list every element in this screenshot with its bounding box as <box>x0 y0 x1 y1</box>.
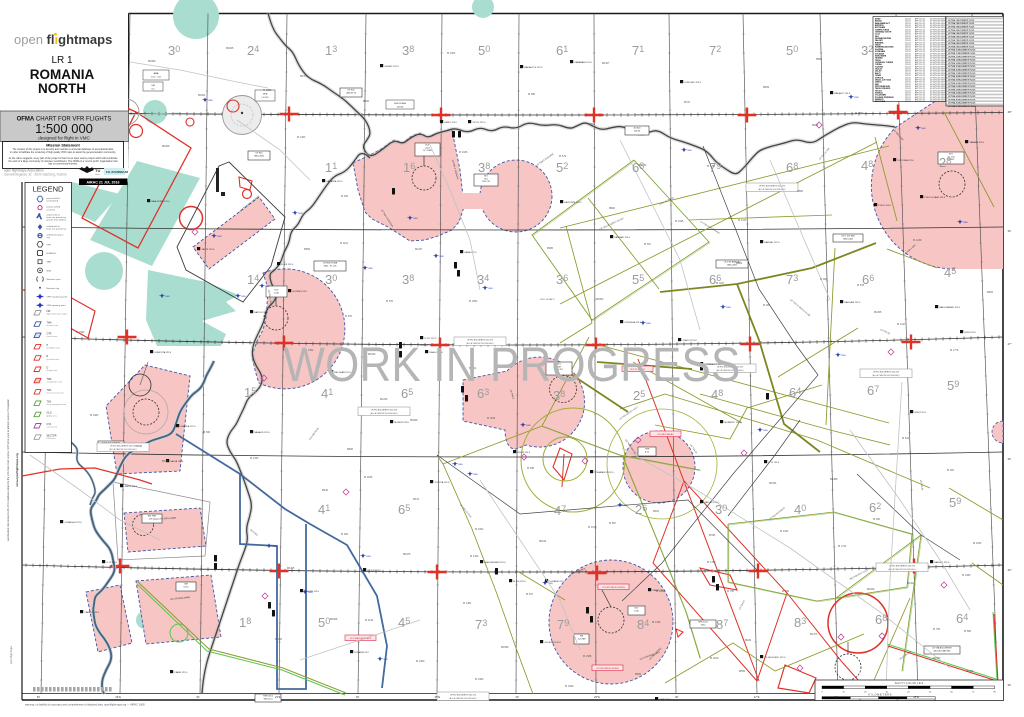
svg-text:temp segregated area: temp segregated area <box>47 403 67 406</box>
svg-text:1:500 000: 1:500 000 <box>35 121 93 136</box>
svg-text:1898: 1898 <box>412 419 418 422</box>
svg-text:450: 450 <box>876 518 881 521</box>
svg-text:722: 722 <box>686 101 691 104</box>
svg-text:485: 485 <box>531 93 536 96</box>
svg-text:30': 30' <box>516 695 520 699</box>
svg-text:429: 429 <box>747 639 752 642</box>
svg-text:1505: 1505 <box>968 670 974 673</box>
svg-text:570: 570 <box>389 300 394 303</box>
svg-text:gliding area: gliding area <box>47 415 58 417</box>
svg-text:579: 579 <box>562 155 567 158</box>
svg-text:1905: 1905 <box>228 47 234 50</box>
svg-text:LR TMA 2 BACAU: LR TMA 2 BACAU <box>657 433 674 436</box>
svg-text:TSA: TSA <box>47 400 52 403</box>
svg-text:1712: 1712 <box>841 545 847 548</box>
svg-text:529: 529 <box>765 86 770 89</box>
svg-text:LR TWR TARGU MURES: LR TWR TARGU MURES <box>602 586 625 589</box>
svg-text:(ALL ALT ABOVE 5000 MSL AGL): (ALL ALT ABOVE 5000 MSL AGL) <box>888 568 915 571</box>
svg-text:HX/ADHC: HX/ADHC <box>47 252 57 255</box>
svg-text:LEGEND: LEGEND <box>33 185 64 194</box>
svg-text:airfield with grass: airfield with grass <box>47 234 65 237</box>
svg-text:760: 760 <box>730 590 735 593</box>
svg-text:warning: no liability for accu: warning: no liability for accuracy and c… <box>25 703 145 707</box>
svg-text:1503: 1503 <box>450 52 456 55</box>
svg-text:1593: 1593 <box>79 331 85 334</box>
svg-text:SECTOR: SECTOR <box>47 434 57 437</box>
svg-text:904: 904 <box>989 291 994 294</box>
svg-text:1247: 1247 <box>900 323 906 326</box>
svg-text:2019: 2019 <box>713 657 719 660</box>
svg-text:1185: 1185 <box>490 417 496 420</box>
svg-text:AMA: AMA <box>154 72 159 75</box>
svg-text:483: 483 <box>766 304 771 307</box>
svg-text:128.30: 128.30 <box>634 130 641 132</box>
svg-text:ELV: ELV <box>635 608 639 610</box>
svg-text:Mountain top: Mountain top <box>47 287 60 290</box>
svg-text:122.05: 122.05 <box>905 101 911 103</box>
svg-text:30': 30' <box>196 695 200 699</box>
svg-text:1190: 1190 <box>541 540 547 543</box>
svg-text:1322: 1322 <box>909 582 915 585</box>
svg-text:PODU 122.0: PODU 122.0 <box>878 205 891 207</box>
svg-text:NASAUD 122.0: NASAUD 122.0 <box>254 431 270 434</box>
svg-text:537: 537 <box>164 460 169 463</box>
svg-text:48°: 48° <box>1008 110 1012 114</box>
svg-text:1995: 1995 <box>965 574 971 577</box>
svg-text:VFR mandatory point: VFR mandatory point <box>47 296 68 299</box>
svg-text:669: 669 <box>785 590 790 593</box>
svg-text:VFR: VFR <box>47 244 52 246</box>
svg-text:1608: 1608 <box>332 618 338 621</box>
svg-text:GND-2000: GND-2000 <box>727 264 738 266</box>
svg-text:TWR 118.1: TWR 118.1 <box>263 696 274 698</box>
svg-text:2045: 2045 <box>367 476 373 479</box>
svg-text:ELV: ELV <box>275 290 279 292</box>
svg-text:23°E: 23°E <box>115 695 121 699</box>
svg-text:designed for flight in VMC: designed for flight in VMC <box>38 136 90 141</box>
svg-text:1032: 1032 <box>783 530 789 533</box>
svg-text:969: 969 <box>306 248 311 251</box>
svg-text:(ALL ALT ABOVE): (ALL ALT ABOVE) <box>934 649 951 652</box>
svg-text:PODU ILOAIEI 122.0: PODU ILOAIEI 122.0 <box>924 196 945 199</box>
svg-text:1776: 1776 <box>953 349 959 352</box>
svg-text:423: 423 <box>814 124 819 127</box>
svg-text:VAMA 122.0: VAMA 122.0 <box>464 251 477 254</box>
svg-text:flight information region: flight information region <box>47 313 68 316</box>
svg-text:LR R10: LR R10 <box>255 153 263 155</box>
svg-text:766: 766 <box>936 628 941 631</box>
svg-text:1327: 1327 <box>604 62 610 65</box>
svg-text:open flightmaps: open flightmaps <box>9 645 13 664</box>
svg-text:1815: 1815 <box>976 542 982 545</box>
svg-text:JIBOU 122.0: JIBOU 122.0 <box>124 486 137 488</box>
svg-text:N A U T I C A L M I L E S: N A U T I C A L M I L E S <box>895 681 924 685</box>
svg-text:1374: 1374 <box>302 75 308 78</box>
svg-text:danger area: danger area <box>47 370 59 372</box>
svg-text:STRUNGA 122.0: STRUNGA 122.0 <box>624 321 641 324</box>
svg-text:SIRET 122.0: SIRET 122.0 <box>444 122 457 124</box>
svg-text:TG SECUIESC 122.0: TG SECUIESC 122.0 <box>764 657 786 659</box>
svg-text:SM: SM <box>151 85 154 87</box>
svg-text:transponder zone: transponder zone <box>47 380 63 383</box>
svg-text:1652: 1652 <box>858 112 864 115</box>
svg-text:ODORHEI 122.0: ODORHEI 122.0 <box>544 642 561 644</box>
svg-text:28°E: 28°E <box>913 695 919 699</box>
svg-text:464: 464 <box>655 510 660 513</box>
svg-text:30': 30' <box>675 695 679 699</box>
svg-text:VFR reporting point: VFR reporting point <box>47 304 66 307</box>
svg-text:27°E: 27°E <box>754 695 760 699</box>
svg-text:1240: 1240 <box>382 398 388 401</box>
svg-text:temp reserved area: temp reserved area <box>47 392 65 395</box>
svg-text:440: 440 <box>324 489 329 492</box>
svg-text:BUKOVINA: BUKOVINA <box>394 102 406 105</box>
svg-text:699: 699 <box>206 431 211 434</box>
svg-text:restricted area: restricted area <box>47 358 61 361</box>
svg-text:PR 305 122.0: PR 305 122.0 <box>367 570 381 572</box>
svg-text:1789: 1789 <box>710 561 716 564</box>
svg-text:VICOV 122.0: VICOV 122.0 <box>472 122 486 124</box>
svg-text:BUCOVINA: BUCOVINA <box>875 100 886 103</box>
svg-text:806: 806 <box>799 190 804 193</box>
svg-text:TAUTII 122.0: TAUTII 122.0 <box>201 248 215 251</box>
svg-text:(ALL ALT ABOVE 5000 MSL AGL): (ALL ALT ABOVE 5000 MSL AGL) <box>872 374 899 377</box>
svg-text:(civ/cml): (civ/cml) <box>47 209 55 211</box>
svg-text:LR FIC BUCURESTI 125.275: LR FIC BUCURESTI 125.275 <box>450 694 477 696</box>
svg-text:30': 30' <box>1008 229 1012 233</box>
svg-text:VICTORIA 122.0: VICTORIA 122.0 <box>897 159 914 162</box>
svg-text:BATOS 122.0: BATOS 122.0 <box>254 311 268 314</box>
svg-text:TOPLITA 122.0: TOPLITA 122.0 <box>434 481 450 484</box>
svg-text:control area: control area <box>47 426 58 429</box>
svg-text:10.4 · 211: 10.4 · 211 <box>151 77 161 79</box>
svg-text:terminal area: terminal area <box>47 324 60 327</box>
svg-text:SIB 112.0: SIB 112.0 <box>264 698 274 700</box>
svg-text:(civ/mil/cml): (civ/mil/cml) <box>47 201 59 203</box>
svg-text:25°E: 25°E <box>435 695 441 699</box>
svg-text:895: 895 <box>818 58 823 61</box>
svg-text:1632: 1632 <box>253 457 259 460</box>
svg-text:GND-2300: GND-2300 <box>843 238 854 240</box>
svg-text:926: 926 <box>344 533 349 536</box>
svg-text:07 / 1680: 07 / 1680 <box>423 150 433 152</box>
svg-text:592: 592 <box>365 100 370 103</box>
svg-text:greater than 1500 m: greater than 1500 m <box>47 219 67 222</box>
svg-text:123.45: 123.45 <box>397 107 404 109</box>
svg-text:1802: 1802 <box>598 298 604 301</box>
svg-text:30': 30' <box>835 695 839 699</box>
svg-text:open flıghtmaps: open flıghtmaps <box>14 32 112 47</box>
svg-text:has no commercial interest.: has no commercial interest. <box>48 163 78 166</box>
svg-text:SLV: SLV <box>484 176 488 178</box>
svg-text:(ALL ALT ABOVE 5000 MSL AGL): (ALL ALT ABOVE 5000 MSL AGL) <box>449 697 476 700</box>
svg-text:WORK IN PROGRESS: WORK IN PROGRESS <box>284 337 741 391</box>
svg-text:1429: 1429 <box>473 555 479 558</box>
svg-text:995: 995 <box>549 247 554 250</box>
svg-text:1945: 1945 <box>678 220 684 223</box>
svg-text:airport with at: airport with at <box>47 213 61 216</box>
svg-text:870: 870 <box>348 315 353 318</box>
svg-text:GLD: GLD <box>47 412 52 415</box>
svg-text:ROMANIA: ROMANIA <box>30 67 95 82</box>
svg-text:30': 30' <box>1008 457 1012 461</box>
svg-text:FIS sector: FIS sector <box>47 437 56 440</box>
svg-text:867: 867 <box>612 522 617 525</box>
svg-text:AIRAC 21 JUL 2016: AIRAC 21 JUL 2016 <box>86 181 119 185</box>
svg-text:1068: 1068 <box>164 145 170 148</box>
svg-text:GND-3500: GND-3500 <box>254 155 265 157</box>
svg-text:TU: TU <box>95 168 100 173</box>
svg-text:1909: 1909 <box>419 660 425 663</box>
svg-text:NORTH: NORTH <box>38 81 86 96</box>
svg-text:COMANESTI 122.0: COMANESTI 122.0 <box>594 471 614 474</box>
svg-text:control zone: control zone <box>47 335 59 338</box>
svg-text:SM: SM <box>580 636 583 638</box>
svg-text:1347: 1347 <box>417 248 423 251</box>
svg-text:894: 894 <box>591 123 596 126</box>
svg-text:612: 612 <box>905 437 910 440</box>
svg-text:HARLAU 122.0: HARLAU 122.0 <box>764 241 780 244</box>
svg-text:SOVATA 122.0: SOVATA 122.0 <box>354 651 369 654</box>
svg-text:1875: 1875 <box>405 553 411 556</box>
svg-text:26°E: 26°E <box>594 695 600 699</box>
svg-text:SIGHET 122.0: SIGHET 122.0 <box>384 66 399 68</box>
svg-text:46°: 46° <box>1008 568 1012 572</box>
svg-text:LR TMA 27 BUCURESTI FL105: LR TMA 27 BUCURESTI FL105 <box>948 105 975 108</box>
svg-text:1405: 1405 <box>289 567 295 570</box>
svg-text:RASCANI 122.0: RASCANI 122.0 <box>844 301 861 304</box>
svg-text:548: 548 <box>138 445 143 448</box>
svg-text:45 SUD: 45 SUD <box>633 128 641 130</box>
svg-text:M 216 122.0: M 216 122.0 <box>513 581 526 583</box>
svg-text:ODOR 122.0: ODOR 122.0 <box>517 452 530 454</box>
svg-text:409: 409 <box>344 195 349 198</box>
svg-text:LR TWR TARGU MURES: LR TWR TARGU MURES <box>596 667 619 670</box>
svg-text:LR D 102 IASI: LR D 102 IASI <box>841 235 855 238</box>
svg-text:SAR: SAR <box>47 261 52 264</box>
svg-text:1679: 1679 <box>591 526 597 529</box>
svg-text:1534: 1534 <box>771 482 777 485</box>
svg-text:HUSI 122.0: HUSI 122.0 <box>964 332 976 334</box>
svg-text:TRA: TRA <box>47 389 52 392</box>
svg-text:CSIK 122.0: CSIK 122.0 <box>659 699 671 701</box>
svg-text:LR FIC BUCURESTI 125.275: LR FIC BUCURESTI 125.275 <box>110 445 137 447</box>
svg-text:1602: 1602 <box>478 528 484 531</box>
svg-text:RADAUTI 122.0: RADAUTI 122.0 <box>834 92 850 95</box>
svg-text:1239: 1239 <box>916 239 922 242</box>
svg-text:SM TWR: SM TWR <box>148 516 157 518</box>
svg-text:788: 788 <box>711 534 716 537</box>
svg-text:1936: 1936 <box>462 151 468 154</box>
svg-text:30': 30' <box>356 695 360 699</box>
svg-text:118.5: 118.5 <box>700 624 706 626</box>
svg-text:GND - FL 105: GND - FL 105 <box>324 265 338 267</box>
svg-text:1373: 1373 <box>812 633 818 636</box>
svg-text:LR FIC BUCURESTI 125.275: LR FIC BUCURESTI 125.275 <box>371 409 398 411</box>
svg-text:47°: 47° <box>1008 342 1012 346</box>
svg-text:LR FIC BUCURESTI 125.275: LR FIC BUCURESTI 125.275 <box>873 371 900 373</box>
svg-text:835: 835 <box>530 467 535 470</box>
svg-text:1365: 1365 <box>876 311 882 314</box>
svg-text:D 75 122.0: D 75 122.0 <box>768 462 779 464</box>
svg-text:GHERLA 122.0: GHERLA 122.0 <box>180 425 196 428</box>
svg-text:GND-FL95: GND-FL95 <box>346 92 357 94</box>
svg-text:least one paved rwy: least one paved rwy <box>47 228 67 231</box>
svg-text:B 463 122.0: B 463 122.0 <box>281 264 294 266</box>
svg-text:paved airfield: paved airfield <box>47 197 61 200</box>
svg-text:NDB: NDB <box>263 94 268 96</box>
svg-text:1132: 1132 <box>368 619 374 622</box>
svg-text:1381: 1381 <box>466 602 472 605</box>
svg-text:least one paved rwy: least one paved rwy <box>47 216 67 219</box>
svg-text:1688: 1688 <box>586 655 592 658</box>
svg-text:LR FIC BUCURESTI 125.275: LR FIC BUCURESTI 125.275 <box>889 565 916 567</box>
svg-text:1388: 1388 <box>832 478 838 481</box>
svg-text:LR 1: LR 1 <box>51 55 73 66</box>
svg-text:TMA: TMA <box>47 321 52 324</box>
svg-text:1099: 1099 <box>568 685 574 688</box>
svg-text:DARABANI 122.0: DARABANI 122.0 <box>574 61 592 64</box>
svg-text:Graz: Graz <box>95 173 100 176</box>
svg-text:1658: 1658 <box>503 646 509 649</box>
svg-text:1909: 1909 <box>478 678 484 681</box>
svg-text:GHEORGHENI 122.0: GHEORGHENI 122.0 <box>484 562 506 564</box>
svg-text:922: 922 <box>950 469 955 472</box>
svg-text:NDB: NDB <box>47 270 52 272</box>
svg-text:559: 559 <box>741 670 746 673</box>
svg-text:aeronautical data revised to t: aeronautical data revised to the VFR dat… <box>7 398 10 541</box>
svg-text:R: R <box>47 355 49 358</box>
svg-text:FH JOANNEUM: FH JOANNEUM <box>106 170 129 174</box>
svg-text:806: 806 <box>611 207 616 210</box>
svg-text:1982: 1982 <box>93 414 99 417</box>
svg-text:1946: 1946 <box>869 588 875 591</box>
svg-text:LR TSA BUCURESTI: LR TSA BUCURESTI <box>932 647 952 650</box>
svg-text:131.0: 131.0 <box>183 586 189 588</box>
svg-text:TMZ: TMZ <box>47 378 52 381</box>
svg-text:1463: 1463 <box>300 136 306 139</box>
svg-text:TABARA 122.0: TABARA 122.0 <box>969 141 984 144</box>
svg-text:1999: 1999 <box>150 60 156 63</box>
svg-text:LR D 41 FALTI: LR D 41 FALTI <box>540 298 555 301</box>
svg-text:443: 443 <box>278 638 283 641</box>
svg-text:CTA: CTA <box>47 423 52 426</box>
svg-text:507: 507 <box>647 243 652 246</box>
svg-text:(ALL ALT ABOVE 5000 MSL AGL): (ALL ALT ABOVE 5000 MSL AGL) <box>370 412 397 415</box>
svg-text:FIR: FIR <box>47 310 51 313</box>
svg-text:1.25 NM: 1.25 NM <box>578 638 586 640</box>
svg-text:SOMCUTA 122.0: SOMCUTA 122.0 <box>154 351 172 354</box>
svg-text:RADUCANENI 122.0: RADUCANENI 122.0 <box>939 306 960 309</box>
svg-text:1213: 1213 <box>741 219 747 222</box>
svg-text:1242: 1242 <box>659 590 665 593</box>
svg-text:1593: 1593 <box>935 657 941 660</box>
svg-text:1496: 1496 <box>655 621 661 624</box>
svg-text:24°E: 24°E <box>275 695 281 699</box>
svg-text:MONOR 122.0: MONOR 122.0 <box>394 422 409 424</box>
svg-text:TWR 120.1: TWR 120.1 <box>698 622 709 624</box>
svg-text:airfield with at: airfield with at <box>47 225 61 228</box>
svg-text:RADAUTI N 122.0: RADAUTI N 122.0 <box>524 66 543 69</box>
svg-text:585: 585 <box>967 630 972 633</box>
svg-text:CICARLAU 122.0: CICARLAU 122.0 <box>64 521 82 524</box>
svg-text:CAREI 2 122.0: CAREI 2 122.0 <box>84 611 99 614</box>
svg-text:BAIA SPRIE 122.0: BAIA SPRIE 122.0 <box>151 200 170 203</box>
svg-text:prohibited area: prohibited area <box>47 347 61 350</box>
svg-text:666: 666 <box>349 448 354 451</box>
svg-text:1252: 1252 <box>266 89 272 92</box>
svg-text:MOINESTI 122.0: MOINESTI 122.0 <box>724 422 741 424</box>
svg-text:in order to facilitate the ren: in order to facilitate the rendering of … <box>10 151 116 154</box>
svg-text:SAPANTA 122.0: SAPANTA 122.0 <box>326 180 343 183</box>
svg-text:1.6.110: 1.6.110 <box>261 97 269 99</box>
svg-text:CTR: CTR <box>47 333 52 336</box>
svg-text:25R / 85: 25R / 85 <box>482 181 491 183</box>
svg-text:45°02'N 021°36'E: 45°02'N 021°36'E <box>930 101 946 103</box>
svg-text:30': 30' <box>37 695 41 699</box>
svg-text:1101: 1101 <box>343 242 349 245</box>
svg-text:SALVA 122.0: SALVA 122.0 <box>170 460 183 463</box>
svg-text:LR R03 ROSIA: LR R03 ROSIA <box>323 262 338 265</box>
svg-text:BM: BM <box>184 584 187 586</box>
svg-text:DOROHOI 122.0: DOROHOI 122.0 <box>684 82 701 84</box>
svg-text:TWR: TWR <box>645 449 650 451</box>
svg-text:D: D <box>47 367 49 370</box>
svg-text:30': 30' <box>1008 683 1012 687</box>
svg-text:829: 829 <box>738 262 743 265</box>
svg-text:FALTICENI 122.0: FALTICENI 122.0 <box>564 201 582 204</box>
svg-text:1602: 1602 <box>200 94 206 97</box>
svg-text:K I L O M E T E R S: K I L O M E T E R S <box>868 693 891 697</box>
svg-text:413: 413 <box>415 498 420 501</box>
svg-text:HUSI 122.0: HUSI 122.0 <box>914 412 926 414</box>
svg-text:V 41 122.0: V 41 122.0 <box>106 562 117 564</box>
svg-text:ELV: ELV <box>426 145 430 147</box>
svg-text:966: 966 <box>823 278 828 281</box>
svg-text:559: 559 <box>637 673 642 676</box>
svg-text:1553: 1553 <box>472 300 478 303</box>
svg-text:APP 119.25: APP 119.25 <box>915 100 925 103</box>
svg-text:LR R02: LR R02 <box>347 90 355 92</box>
svg-text:Gemeindegasse 32 · 5020 Salzbu: Gemeindegasse 32 · 5020 Salzburg, Austri… <box>4 173 67 177</box>
svg-text:Mission Statement: Mission Statement <box>46 144 80 148</box>
svg-text:CAREI 122.0: CAREI 122.0 <box>174 671 188 674</box>
svg-text:PASCANI 122.0: PASCANI 122.0 <box>614 236 630 239</box>
svg-text:private airfield: private airfield <box>47 206 61 209</box>
svg-text:www.openflightmaps.org: www.openflightmaps.org <box>15 453 19 488</box>
svg-text:(ALL ALT ABOVE 5000 MSL AGL): (ALL ALT ABOVE 5000 MSL AGL) <box>109 448 136 451</box>
svg-text:Mountain pass: Mountain pass <box>47 278 62 281</box>
svg-text:817: 817 <box>529 593 534 596</box>
svg-text:HOTENI 122.0: HOTENI 122.0 <box>292 291 307 293</box>
